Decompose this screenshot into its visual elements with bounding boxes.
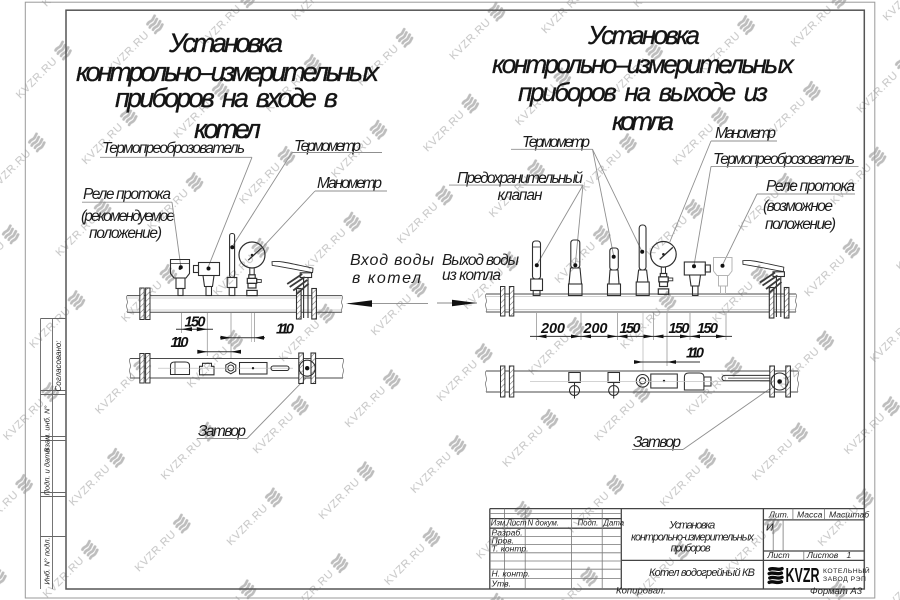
svg-text:клапан: клапан xyxy=(498,187,543,204)
svg-text:приборов: приборов xyxy=(671,543,711,555)
svg-text:ЗАВОД РЭП: ЗАВОД РЭП xyxy=(823,576,866,583)
svg-text:110: 110 xyxy=(686,346,704,362)
svg-text:Установка: Установка xyxy=(668,520,715,532)
svg-text:Т. контр.: Т. контр. xyxy=(492,544,529,554)
svg-text:Лист: Лист xyxy=(506,519,528,528)
svg-text:Предохранительный: Предохранительный xyxy=(457,170,583,187)
svg-text:Вход воды: Вход воды xyxy=(350,252,434,269)
svg-text:Котел водогрейный КВ: Котел водогрейный КВ xyxy=(649,567,755,579)
svg-text:Взам. инб. N°: Взам. инб. N° xyxy=(43,406,52,453)
svg-text:Копировал.: Копировал. xyxy=(616,586,666,597)
svg-text:200: 200 xyxy=(540,321,565,337)
svg-text:(рекомендуемое: (рекомендуемое xyxy=(81,208,175,225)
svg-text:Инб. N° подл.: Инб. N° подл. xyxy=(43,537,52,584)
svg-text:приборов на входе в: приборов на входе в xyxy=(115,83,338,113)
svg-text:котла: котла xyxy=(612,106,674,136)
svg-text:150: 150 xyxy=(185,315,206,331)
svg-text:Манометр: Манометр xyxy=(715,125,776,142)
svg-text:150: 150 xyxy=(669,321,690,337)
svg-text:(возможное: (возможное xyxy=(763,198,833,215)
svg-text:И: И xyxy=(766,522,774,534)
svg-text:Формат А3: Формат А3 xyxy=(810,586,863,597)
svg-text:Листов: Листов xyxy=(806,550,839,560)
svg-text:150: 150 xyxy=(620,321,641,337)
svg-text:Лист: Лист xyxy=(767,550,790,560)
svg-text:Затвор: Затвор xyxy=(198,423,246,440)
svg-text:Реле протока: Реле протока xyxy=(766,178,855,195)
svg-text:Установка: Установка xyxy=(168,28,283,58)
svg-text:Н. контр.: Н. контр. xyxy=(492,569,531,579)
svg-text:положение): положение) xyxy=(89,225,162,242)
svg-text:Термопреоброзователь: Термопреоброзователь xyxy=(102,140,245,157)
svg-text:Изм.: Изм. xyxy=(491,519,508,528)
svg-text:Согласовано:: Согласовано: xyxy=(54,340,63,391)
svg-text:Подп. и дата: Подп. и дата xyxy=(43,449,52,496)
svg-text:Подп.: Подп. xyxy=(578,519,599,528)
svg-text:Дата: Дата xyxy=(603,519,625,528)
svg-text:контрольно-измерительных: контрольно-измерительных xyxy=(631,531,755,543)
svg-text:Термопреоброзователь: Термопреоброзователь xyxy=(713,151,855,168)
svg-text:1: 1 xyxy=(847,550,852,560)
svg-text:приборов на выходе из: приборов на выходе из xyxy=(518,77,768,107)
svg-text:Манометр: Манометр xyxy=(317,175,382,192)
svg-text:Термометр: Термометр xyxy=(522,134,590,151)
svg-text:Реле протока: Реле протока xyxy=(83,186,171,203)
svg-text:200: 200 xyxy=(583,321,608,337)
svg-text:Затвор: Затвор xyxy=(633,434,681,451)
svg-text:Утв.: Утв. xyxy=(491,579,512,589)
svg-text:Лит.: Лит. xyxy=(768,509,789,519)
svg-text:положение): положение) xyxy=(765,216,836,233)
svg-text:N докум.: N докум. xyxy=(528,519,560,528)
svg-text:контрольно–измерительных: контрольно–измерительных xyxy=(492,49,795,79)
svg-text:Масса: Масса xyxy=(797,509,823,519)
svg-text:КОТЕЛЬНЫЙ: КОТЕЛЬНЫЙ xyxy=(823,566,870,575)
svg-text:150: 150 xyxy=(697,321,718,337)
svg-text:из котла: из котла xyxy=(442,267,501,284)
svg-text:KVZR: KVZR xyxy=(786,564,820,587)
svg-text:110: 110 xyxy=(276,322,294,338)
svg-text:Установка: Установка xyxy=(587,20,700,50)
svg-text:Масштаб: Масштаб xyxy=(829,509,870,519)
svg-text:110: 110 xyxy=(171,335,189,351)
